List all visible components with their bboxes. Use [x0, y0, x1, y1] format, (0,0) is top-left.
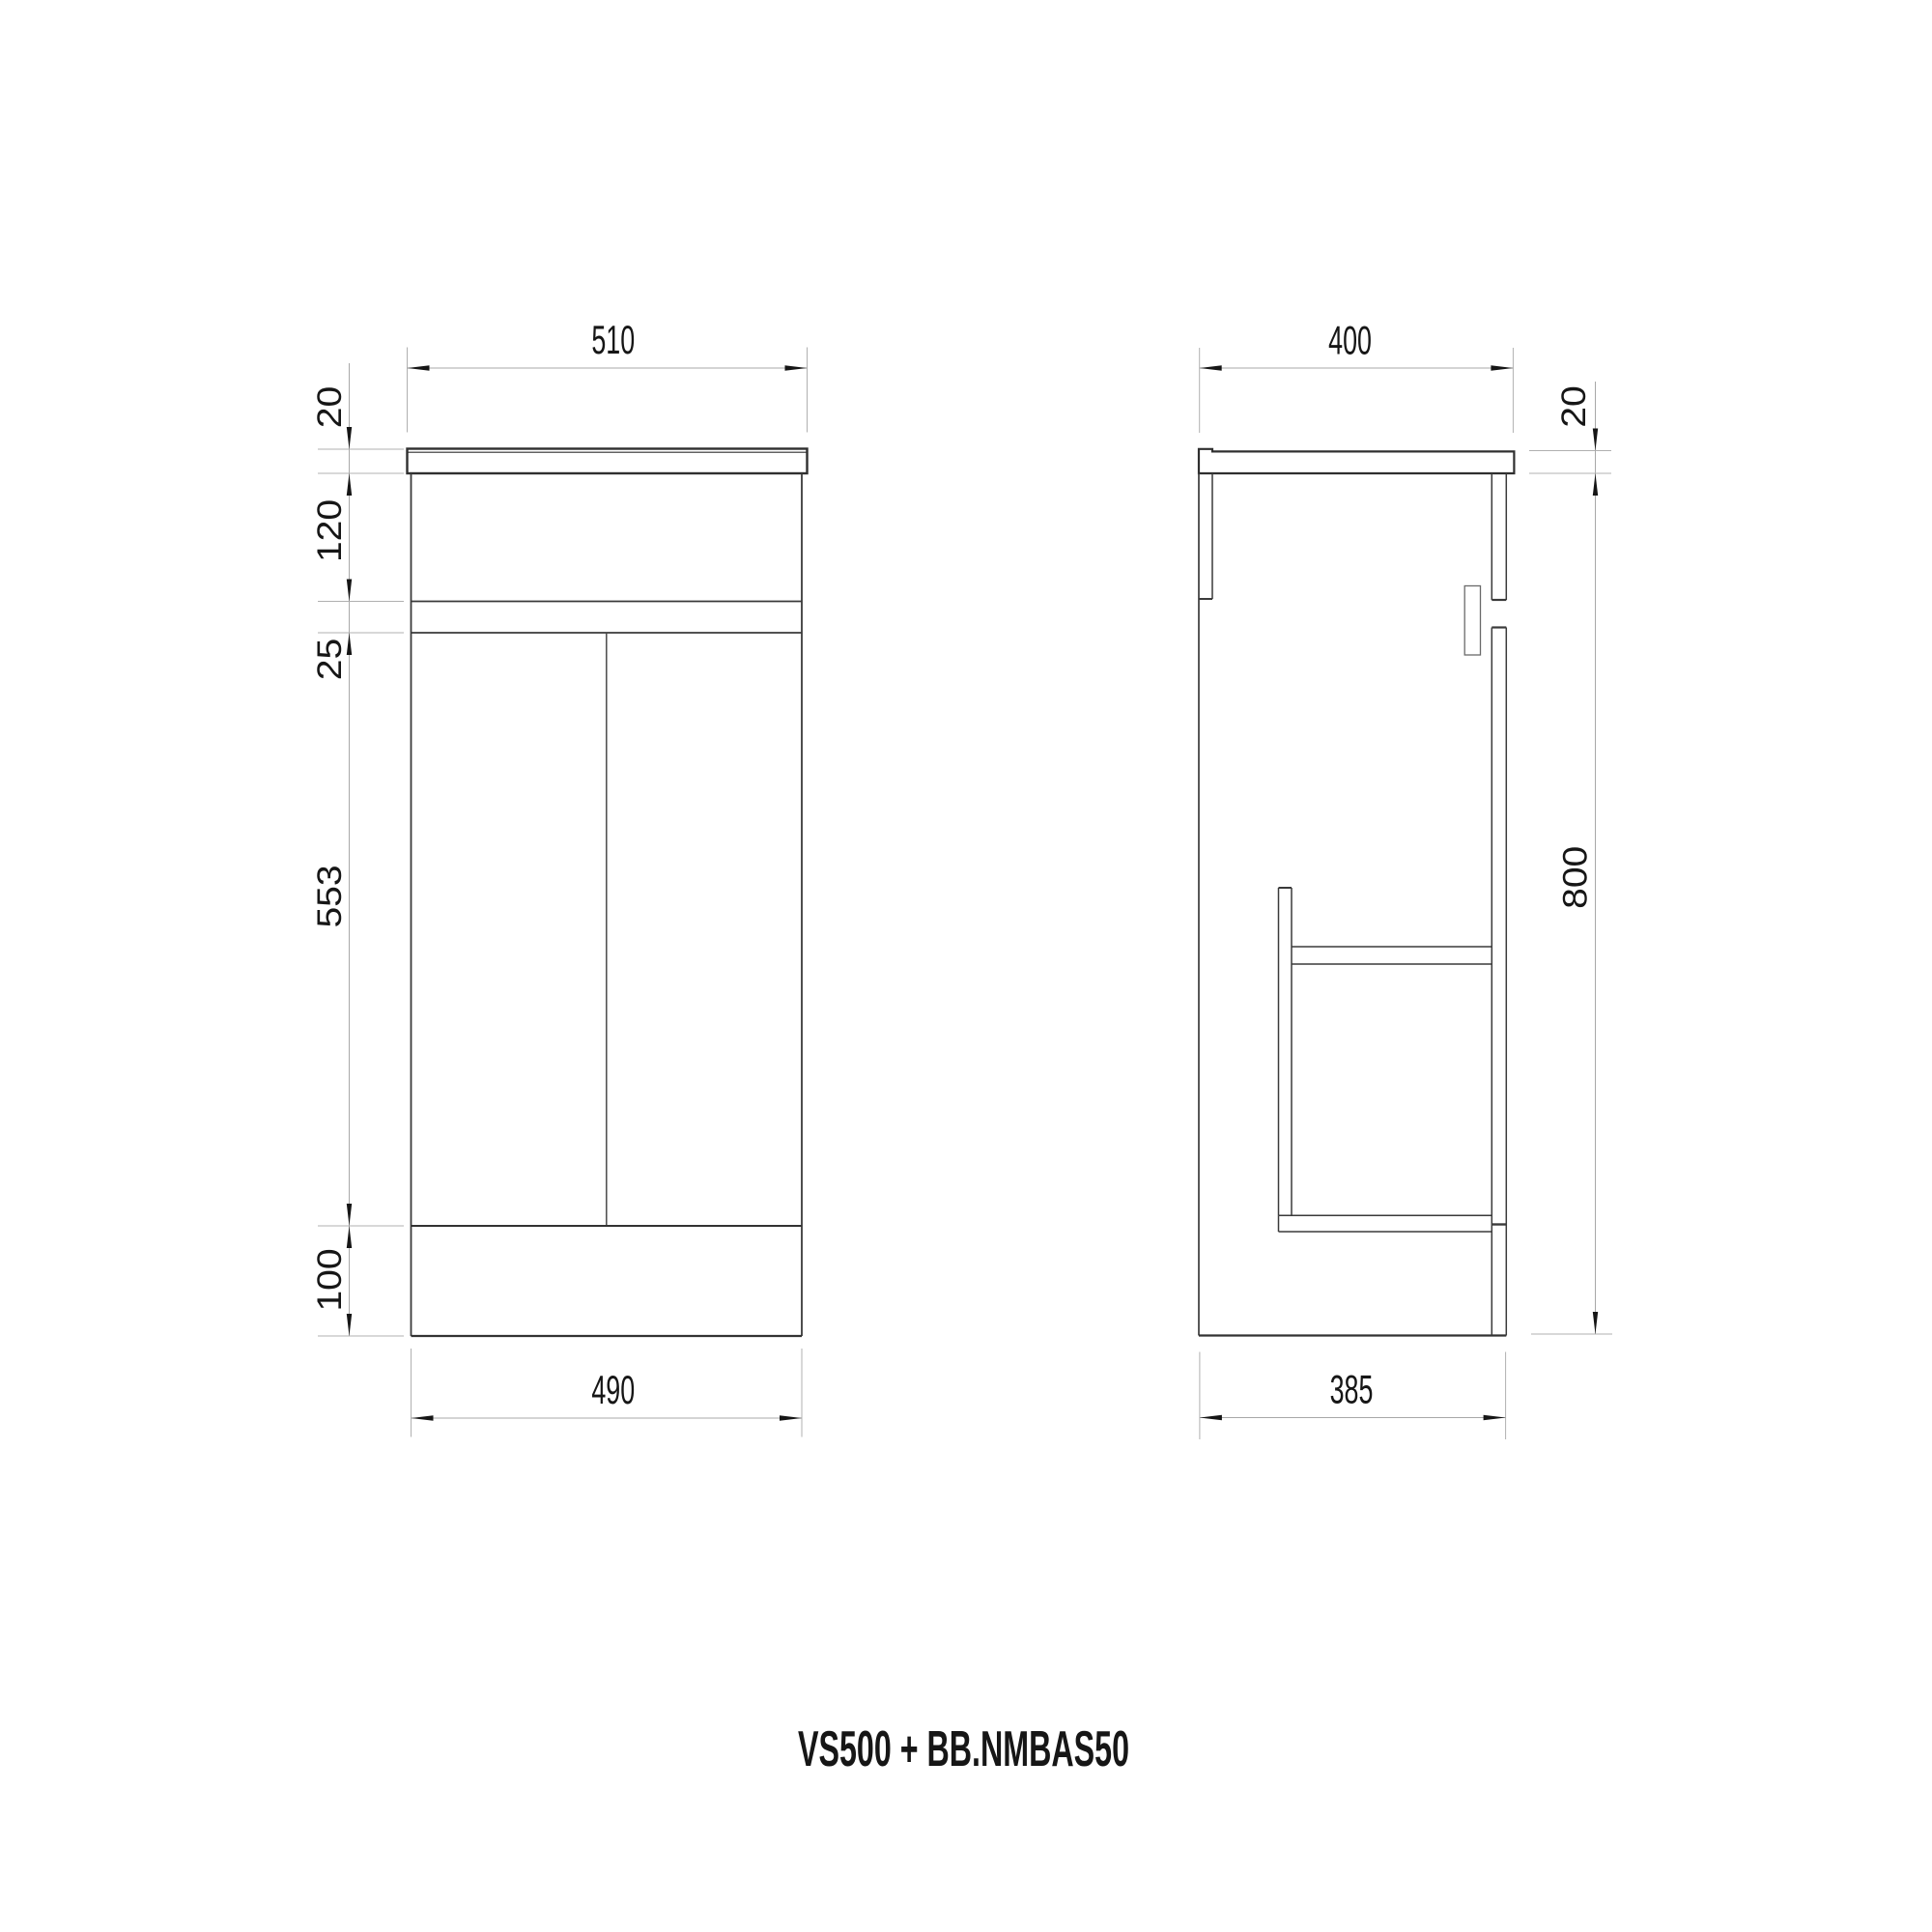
svg-text:VS500 + BB.NMBAS50: VS500 + BB.NMBAS50 [798, 1721, 1129, 1777]
svg-text:490: 490 [591, 1368, 635, 1412]
svg-text:100: 100 [310, 1248, 349, 1311]
svg-text:400: 400 [1328, 318, 1372, 362]
svg-text:553: 553 [310, 865, 349, 927]
svg-text:20: 20 [310, 386, 349, 428]
svg-text:800: 800 [1555, 846, 1594, 909]
svg-text:25: 25 [310, 639, 349, 680]
svg-text:385: 385 [1330, 1368, 1374, 1412]
svg-text:510: 510 [591, 318, 635, 362]
svg-text:20: 20 [1554, 385, 1593, 427]
svg-text:120: 120 [310, 499, 349, 562]
